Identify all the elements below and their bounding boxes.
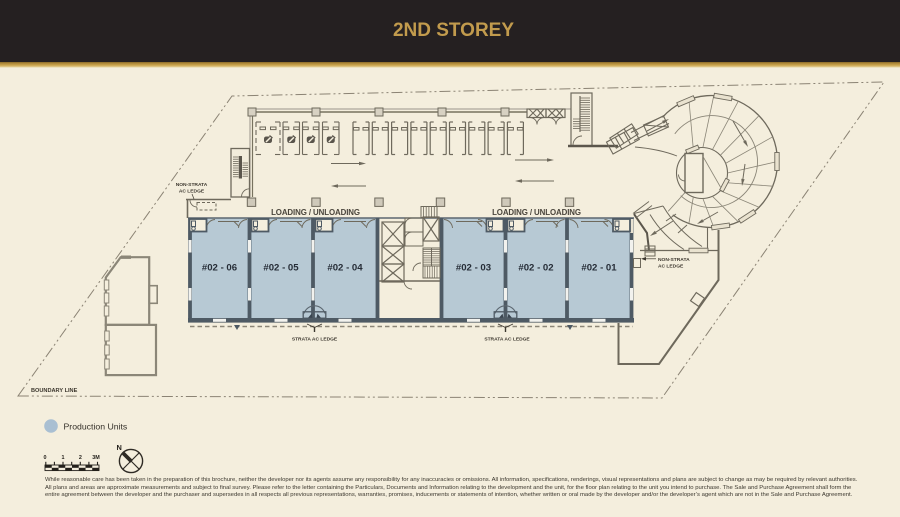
svg-text:3M: 3M [92,455,100,461]
svg-text:#02 - 06: #02 - 06 [202,263,237,274]
svg-text:#02 - 05: #02 - 05 [263,263,299,274]
svg-text:NON-STRATA: NON-STRATA [176,182,208,188]
svg-text:NON-STRATA: NON-STRATA [658,257,690,263]
svg-text:STRATA AC LEDGE: STRATA AC LEDGE [292,337,338,343]
svg-text:2: 2 [79,455,82,461]
svg-text:Production Units: Production Units [64,422,128,432]
svg-text:LOADING / UNLOADING: LOADING / UNLOADING [271,208,360,217]
svg-text:BOUNDARY LINE: BOUNDARY LINE [31,388,78,394]
svg-text:LOADING / UNLOADING: LOADING / UNLOADING [492,208,581,217]
svg-text:0: 0 [44,455,47,461]
svg-text:AC LEDGE: AC LEDGE [179,189,205,195]
svg-text:#02 - 01: #02 - 01 [581,263,617,274]
svg-text:STRATA AC LEDGE: STRATA AC LEDGE [484,337,530,343]
svg-text:#02 - 03: #02 - 03 [456,263,491,274]
svg-text:#02 - 04: #02 - 04 [327,263,363,274]
svg-text:AC LEDGE: AC LEDGE [658,264,684,270]
svg-text:1: 1 [62,455,65,461]
svg-text:#02 - 02: #02 - 02 [518,263,553,274]
svg-text:N: N [117,443,122,452]
